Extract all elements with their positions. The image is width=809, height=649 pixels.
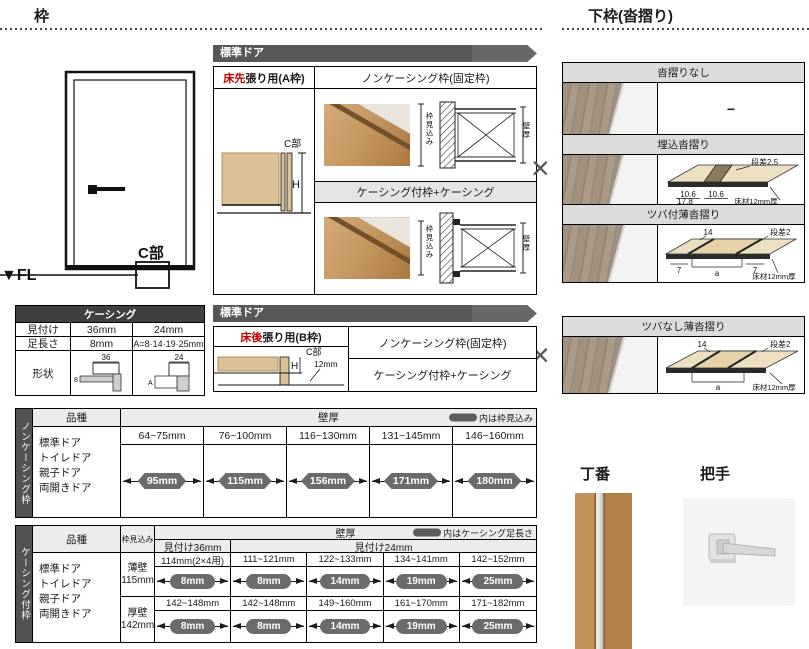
arrow-left-icon (157, 623, 165, 629)
arrow-right-icon (442, 478, 450, 484)
dimension-arrow: 180mm (453, 445, 536, 517)
dimension-arrow: 171mm (370, 445, 452, 517)
c-part-label: C部 (138, 244, 164, 262)
dimension-arrow: 95mm (121, 445, 203, 517)
product-item: 両開きドア (39, 607, 92, 622)
handle-photo (683, 498, 795, 606)
thick-wall-cell: 厚壁 142mm (121, 597, 155, 642)
note-pill (449, 414, 477, 422)
arrow-right-icon (373, 623, 381, 629)
value-cell: 25mm (460, 567, 536, 597)
mitsuke-24: 24mm (133, 323, 204, 336)
sill-table-upper: 沓摺りなし − 埋込沓摺り 段差2.5 10.6 10.6 17.8 床材12m… (562, 62, 805, 283)
dimension-arrow: 115mm (204, 445, 286, 517)
value-pill: 95mm (138, 473, 186, 489)
sill-front-face (666, 254, 770, 259)
door-handle-icon (88, 185, 97, 194)
dimension-arrow: 25mm (460, 567, 536, 596)
step-label: 段差2 (770, 227, 791, 237)
arrow-right-icon (276, 478, 284, 484)
noncasing-corner-photo (324, 104, 410, 166)
arrow-left-icon (462, 623, 470, 629)
step-label: 段差2 (770, 339, 791, 349)
ashinaga-36: 8mm (71, 337, 133, 350)
arrow-right-icon (220, 578, 228, 584)
group-24-header: 見付け24mm (231, 540, 536, 553)
thin-wall-type: 薄壁 (128, 563, 148, 575)
noncasing-side-label: ノンケーシング枠 (17, 421, 31, 505)
sill-umekomi-svg: 段差2.5 10.6 10.6 17.8 床材12mm厚 (658, 156, 804, 204)
arrow-left-icon (386, 623, 394, 629)
dotted-rule-right (562, 28, 809, 30)
arrow-right-icon (359, 478, 367, 484)
range-cell: 171~182mm (460, 597, 536, 611)
dimension-arrow: 14mm (307, 611, 382, 642)
noncasing-spec-table: ノンケーシング枠 品種 壁厚 内は枠見込み 標準ドア トイレドア 親子ドア 両開… (15, 408, 537, 518)
dim-12mm: 12mm (314, 359, 338, 369)
arrow-left-icon (123, 478, 131, 484)
shape-36-svg: 36 8 (73, 352, 131, 394)
dim-17-8: 17.8 (677, 197, 693, 204)
frame-strip-1 (281, 153, 285, 211)
h-label-b: H (291, 361, 298, 372)
thin-wall-size: 115mm (121, 575, 154, 587)
sill-table-lower: ツバなし薄沓摺り 14 段差2 a 床材12mm厚 (562, 316, 805, 394)
value-cell: 180mm (453, 445, 536, 517)
arrow-left-icon (309, 578, 317, 584)
arrow-right-icon (526, 478, 534, 484)
dotted-rule-left (0, 28, 543, 30)
wall-thickness-label: 壁厚 (521, 235, 532, 252)
frame-a-header-red: 床先 (223, 70, 245, 86)
handle-photo-svg (683, 498, 795, 606)
dimension-arrow: 8mm (231, 567, 306, 596)
value-cell: 8mm (231, 611, 307, 642)
frame-b-noncasing: ノンケーシング枠(固定枠) (349, 327, 536, 359)
door-handle-bar (97, 187, 125, 191)
h-label-a: H (292, 179, 300, 191)
value-cell: 156mm (287, 445, 370, 517)
frame-b-casing: ケーシング付枠+ケーシング (349, 359, 536, 391)
sill-umekomi-photo (563, 155, 658, 204)
range-cell: 142~148mm (155, 597, 231, 611)
thick-wall-size: 142mm (121, 620, 154, 632)
range-cell: 122~133mm (307, 553, 383, 567)
arrow-right-icon (449, 578, 457, 584)
value-pill: 115mm (218, 473, 272, 489)
frame-a-left-header: 床先張り用(A枠) (214, 67, 315, 88)
frame-b-section-diagram: C部 H 12mm (214, 347, 348, 396)
arrow-left-icon (462, 578, 470, 584)
sill-none-dash: − (658, 83, 804, 134)
value-pill: 19mm (396, 574, 447, 589)
casing-trim-top (453, 219, 460, 225)
page-title-sill: 下枠(沓摺り) (588, 5, 673, 26)
arrow-right-icon (193, 478, 201, 484)
value-pill: 19mm (396, 619, 447, 634)
arrow-left-icon (233, 578, 241, 584)
frame-strip (280, 357, 289, 385)
casing-profile-foot (177, 376, 189, 391)
range-cell: 161~170mm (384, 597, 460, 611)
casing-spec-title: ケーシング (16, 306, 204, 323)
floor-material-label: 床材12mm厚 (752, 382, 796, 392)
arrow-right-icon (526, 623, 534, 629)
arrow-left-icon (455, 478, 463, 484)
casing-section-diagram: 枠見込み 壁厚 (414, 211, 532, 285)
value-cell: 19mm (384, 567, 460, 597)
shape36-left-dim: 8 (74, 377, 78, 384)
dimension-arrow: 8mm (231, 611, 306, 642)
fl-label: ▼FL (1, 267, 37, 284)
handle-rosette-shadow (710, 559, 736, 563)
arrow-left-icon (386, 578, 394, 584)
sill-front-face (668, 182, 768, 187)
note-text: 内は枠見込み (479, 411, 533, 424)
arrow-right-icon (526, 578, 534, 584)
shape24-top-dim: 24 (174, 353, 183, 362)
value-cell: 14mm (307, 611, 383, 642)
dim-10-6-right: 10.6 (708, 190, 724, 199)
value-pill: 180mm (467, 473, 521, 489)
sill-front-face (666, 368, 766, 373)
sill-tsubanashi-row: 14 段差2 a 床材12mm厚 (563, 337, 804, 393)
note-text: 内はケーシング足長さ (443, 526, 533, 539)
dim-a: a (716, 383, 721, 392)
dim-14: 14 (704, 228, 713, 237)
page-title-frame: 枠 (34, 5, 49, 26)
value-cell: 8mm (231, 567, 307, 597)
range-cell: 134~141mm (384, 553, 460, 567)
dim-14: 14 (698, 340, 707, 349)
frame-a-casing-header: ケーシング付枠+ケーシング (315, 181, 536, 203)
c-part-label-a: C部 (284, 137, 301, 150)
range-cell: 114mm(2×4用) (155, 553, 231, 567)
sill-none-row: − (563, 83, 804, 135)
range-cell: 146~160mm (453, 427, 536, 445)
shape24-left-dim: A (148, 380, 153, 387)
frame-a-right-column: 枠見込み 壁厚 (315, 89, 536, 294)
value-pill: 8mm (170, 619, 215, 634)
dimension-arrow: 25mm (460, 611, 536, 642)
dim-a: a (715, 269, 720, 278)
leader (310, 369, 320, 381)
frame-a-body: C部 H 枠見込み 壁厚 (214, 89, 536, 294)
frame-a-header-row: 床先張り用(A枠) ノンケーシング枠(固定枠) (214, 67, 536, 89)
arrow-left-icon (372, 478, 380, 484)
casing-spec-table: ケーシング 見付け 36mm 24mm 足長さ 8mm A=8·14·19·25… (15, 305, 205, 396)
floor-material-label: 床材12mm厚 (752, 271, 796, 281)
frame-b-header-rest: 張り用(B枠) (262, 329, 321, 345)
thin-wall-cell: 薄壁 115mm (121, 553, 155, 597)
casing-side-label: ケーシング付枠 (17, 547, 31, 621)
frame-b-left-header: 床後張り用(B枠) (214, 327, 348, 347)
wall-thickness-header: 壁厚 内はケーシング足長さ (155, 526, 536, 540)
sill-umekomi-header: 埋込沓摺り (563, 135, 804, 155)
casing-profile-bar (80, 376, 113, 382)
dimension-arrow: 8mm (155, 611, 230, 642)
casing-trim-bottom (453, 271, 460, 277)
product-item: 標準ドア (39, 562, 81, 577)
dimension-arrow: 156mm (287, 445, 369, 517)
frame-b-right-column: ノンケーシング枠(固定枠) ケーシング付枠+ケーシング (349, 327, 536, 391)
casing-spec-row-shape: 形状 36 8 24 A (16, 351, 204, 395)
shape-36-diagram: 36 8 (71, 351, 133, 395)
sill-tsuba-svg: 14 段差2 7 a 7 床材12mm厚 (658, 226, 804, 281)
value-cell: 19mm (384, 611, 460, 642)
jamb-hatched (440, 213, 453, 283)
casing-profile-top (93, 363, 119, 374)
casing-profile-foot (113, 374, 121, 391)
banner-standard-door-b: 標準ドア (213, 305, 537, 322)
note: 内は枠見込み (449, 411, 533, 424)
frame-a-section-svg: C部 H (214, 89, 314, 294)
sill-tsubanashi-photo (563, 337, 658, 393)
ashinaga-label: 足長さ (16, 337, 71, 350)
frame-a-header-rest: 張り用(A枠) (245, 70, 304, 86)
value-cell: 171mm (370, 445, 453, 517)
sill-tsuba-diagram: 14 段差2 7 a 7 床材12mm厚 (658, 225, 804, 282)
value-pill: 156mm (301, 473, 355, 489)
value-pill: 171mm (384, 473, 438, 489)
range-cell: 149~160mm (307, 597, 383, 611)
jamb-hatched (440, 102, 455, 168)
sill-none-photo (563, 83, 658, 134)
casing-content: 枠見込み 壁厚 (315, 203, 536, 295)
casing-spec-big-table: ケーシング付枠 品種 枠見込み 壁厚 内はケーシング足長さ 見付け36mm 見付… (15, 525, 537, 643)
arrow-right-icon (220, 623, 228, 629)
sill-tsuba-row: 14 段差2 7 a 7 床材12mm厚 (563, 225, 804, 282)
frame-a-section-diagram: C部 H (214, 89, 315, 294)
noncasing-section-diagram: 枠見込み 壁厚 (414, 98, 532, 172)
arrow-right-icon (449, 623, 457, 629)
arrow-left-icon (309, 623, 317, 629)
noncasing-side-strip: ノンケーシング枠 (16, 409, 33, 517)
frame-b-header-red: 床後 (240, 329, 262, 345)
sill-umekomi-row: 段差2.5 10.6 10.6 17.8 床材12mm厚 (563, 155, 804, 205)
value-pill: 8mm (246, 619, 291, 634)
sill-tsuba-photo (563, 225, 658, 282)
mikomi-header: 枠見込み (121, 526, 155, 553)
casing-side-strip: ケーシング付枠 (16, 526, 33, 642)
door-leaf (74, 80, 186, 267)
arrow-left-icon (206, 478, 214, 484)
range-cell: 116~130mm (287, 427, 370, 445)
casing-spec-row-ashinaga: 足長さ 8mm A=8·14·19·25mm (16, 337, 204, 351)
sill-tsubanashi-svg: 14 段差2 a 床材12mm厚 (658, 338, 804, 392)
noncasing-grid: 品種 壁厚 内は枠見込み 標準ドア トイレドア 親子ドア 両開きドア 64~75… (33, 409, 536, 517)
product-item: 両開きドア (39, 481, 92, 496)
dim-7-left: 7 (677, 266, 682, 275)
frame-a-noncasing-header: ノンケーシング枠(固定枠) (315, 67, 536, 88)
range-cell: 131~145mm (370, 427, 453, 445)
cross-mark-top: × (531, 152, 550, 184)
dimension-arrow: 8mm (155, 567, 230, 596)
product-item: 標準ドア (39, 436, 81, 451)
banner-standard-door-a: 標準ドア (213, 45, 537, 62)
noncasing-content: 枠見込み 壁厚 (315, 89, 536, 181)
product-list: 標準ドア トイレドア 親子ドア 両開きドア (33, 427, 121, 517)
casing-spec-row-mitsuke: 見付け 36mm 24mm (16, 323, 204, 337)
mitsuke-36: 36mm (71, 323, 133, 336)
arrow-right-icon (373, 578, 381, 584)
c-part-label-b: C部 (306, 347, 322, 357)
range-cell: 64~75mm (121, 427, 204, 445)
handle-label: 把手 (700, 463, 730, 484)
note-pill (413, 529, 441, 537)
value-cell: 95mm (121, 445, 204, 517)
hinge-photo (575, 493, 632, 649)
frame-b-table: 床後張り用(B枠) C部 H 12mm ノンケーシング枠(固定枠) ケーシング付… (213, 326, 537, 392)
frame-a-table: 床先張り用(A枠) ノンケーシング枠(固定枠) C部 H 枠見込み (213, 66, 537, 295)
value-cell: 8mm (155, 611, 231, 642)
frame-depth-label: 枠見込み (424, 225, 435, 259)
door-panel-section (222, 153, 279, 205)
wall-thickness-label: 壁厚 (521, 122, 532, 139)
sill-none-header: 沓摺りなし (563, 63, 804, 83)
product-item: トイレドア (39, 451, 92, 466)
thick-wall-type: 厚壁 (128, 608, 148, 620)
wall-thickness-header: 壁厚 内は枠見込み (121, 409, 536, 427)
sill-umekomi-diagram: 段差2.5 10.6 10.6 17.8 床材12mm厚 (658, 155, 804, 204)
sill-tsubanashi-diagram: 14 段差2 a 床材12mm厚 (658, 337, 804, 393)
frame-b-left-column: 床後張り用(B枠) C部 H 12mm (214, 327, 349, 391)
product-item: トイレドア (39, 577, 92, 592)
hinge-label: 丁番 (580, 463, 610, 484)
shape36-top-dim: 36 (101, 353, 110, 362)
sill-tsuba-header: ツバ付薄沓摺り (563, 205, 804, 225)
shape-24-svg: 24 A (139, 352, 199, 394)
shape-label: 形状 (16, 351, 71, 395)
wall-label: 壁厚 (335, 526, 355, 540)
value-cell: 14mm (307, 567, 383, 597)
casing-profile-top (169, 363, 189, 376)
door-elevation-diagram: C部 ▼FL (0, 58, 210, 313)
value-pill: 8mm (170, 574, 215, 589)
step-label: 段差2.5 (751, 157, 779, 167)
leader (772, 259, 778, 273)
value-cell: 8mm (155, 567, 231, 597)
hinshu-header: 品種 (33, 409, 121, 427)
product-item: 親子ドア (39, 466, 81, 481)
sill-tsubanashi-header: ツバなし薄沓摺り (563, 317, 804, 337)
range-cell: 142~152mm (460, 553, 536, 567)
frame-depth-label: 枠見込み (424, 112, 435, 146)
arrow-left-icon (157, 578, 165, 584)
dimension-arrow: 19mm (384, 567, 459, 596)
note: 内はケーシング足長さ (413, 526, 533, 539)
door-panel-section (218, 357, 278, 371)
arrow-left-icon (233, 623, 241, 629)
group-36-header: 見付け36mm (155, 540, 231, 553)
arrow-right-icon (296, 578, 304, 584)
mitsuke-label: 見付け (16, 323, 71, 336)
value-pill: 14mm (320, 619, 371, 634)
floor-material-label: 床材12mm厚 (734, 196, 778, 204)
shape-24-diagram: 24 A (133, 351, 204, 395)
range-cell: 76~100mm (204, 427, 287, 445)
value-pill: 8mm (246, 574, 291, 589)
value-cell: 25mm (460, 611, 536, 642)
arrow-left-icon (289, 478, 297, 484)
range-cell: 111~121mm (231, 553, 307, 567)
value-pill: 25mm (472, 619, 523, 634)
casing-corner-photo (324, 217, 410, 279)
product-list: 標準ドア トイレドア 親子ドア 両開きドア (33, 553, 121, 642)
value-cell: 115mm (204, 445, 287, 517)
dimension-arrow: 19mm (384, 611, 459, 642)
door-elevation-svg: C部 ▼FL (0, 58, 210, 308)
frame-b-section-svg: C部 H 12mm (214, 347, 347, 391)
sill-top-face (668, 165, 798, 182)
dimension-arrow: 14mm (307, 567, 382, 596)
hinshu-header: 品種 (33, 526, 121, 553)
range-cell: 142~148mm (231, 597, 307, 611)
value-pill: 14mm (320, 574, 371, 589)
arrow-right-icon (296, 623, 304, 629)
ashinaga-24: A=8·14·19·25mm (133, 337, 204, 350)
casing-grid: 品種 枠見込み 壁厚 内はケーシング足長さ 見付け36mm 見付け24mm 標準… (33, 526, 536, 642)
wall-label: 壁厚 (318, 410, 339, 425)
value-pill: 25mm (472, 574, 523, 589)
product-item: 親子ドア (39, 592, 81, 607)
casing-profile-base (155, 376, 177, 388)
